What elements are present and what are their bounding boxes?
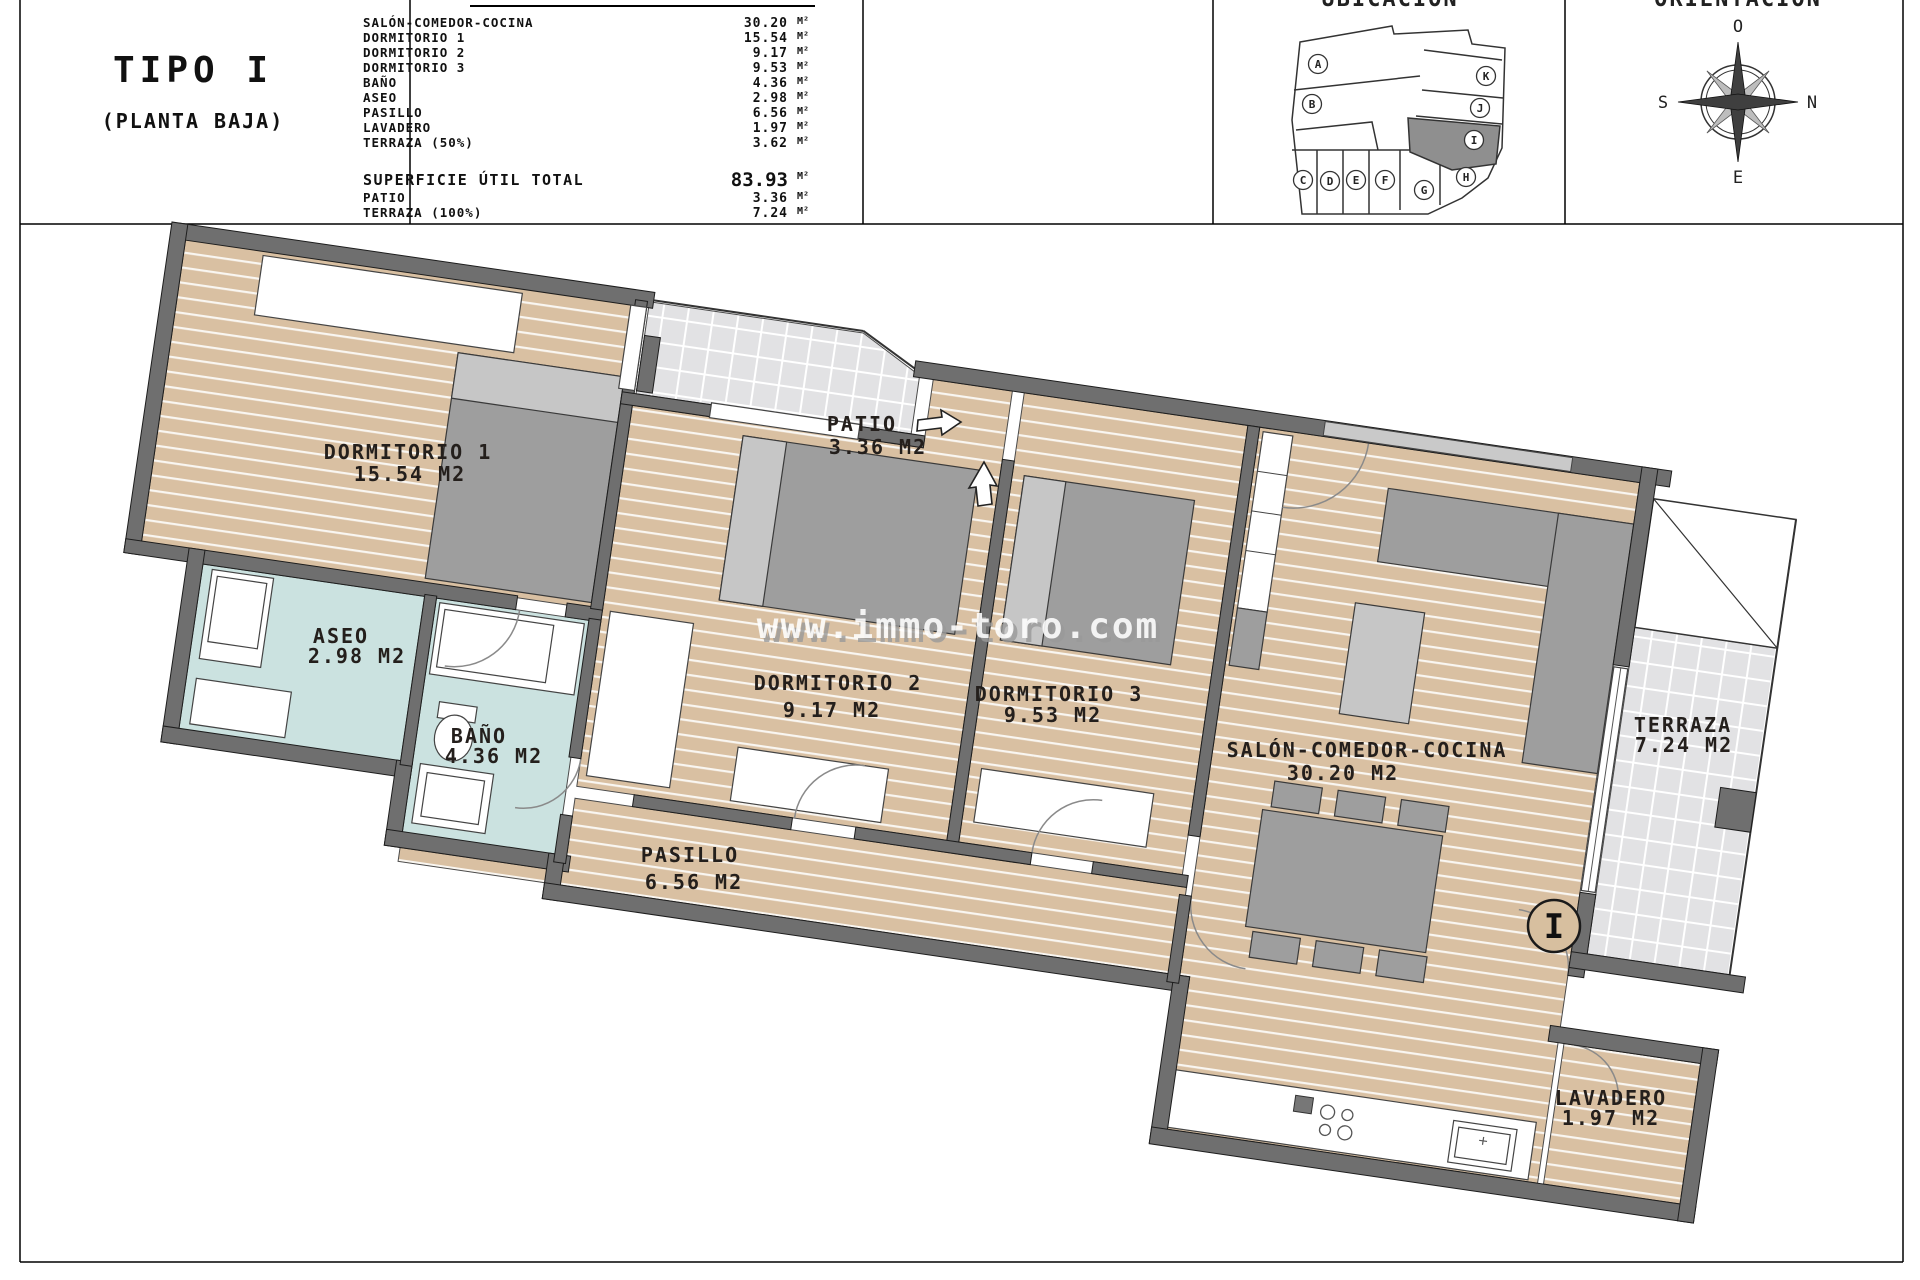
table-row-unit: M² <box>797 136 809 147</box>
table-row-label: TERRAZA (50%) <box>363 135 474 150</box>
room-area-pasillo: 6.56 M2 <box>645 870 743 894</box>
table-row-unit: M² <box>797 76 809 87</box>
table-row-value: 9.17 <box>753 46 788 61</box>
table-row-unit: M² <box>797 91 809 102</box>
unit-letter: C <box>1300 174 1307 187</box>
table-row-label: SALÓN-COMEDOR-COCINA <box>363 15 534 30</box>
table-row-unit: M² <box>797 206 809 217</box>
compass-label-right: N <box>1807 93 1817 113</box>
room-name-pasillo: PASILLO <box>641 843 739 867</box>
table-row-unit: M² <box>797 61 809 72</box>
table-row-unit: M² <box>797 191 809 202</box>
table-row-unit: M² <box>797 171 809 182</box>
terraza-planter <box>1715 787 1756 832</box>
unit-letter: B <box>1309 98 1316 111</box>
table-row-value: 15.54 <box>744 31 788 46</box>
room-area-salon: 30.20 M2 <box>1287 761 1399 785</box>
table-row-label: LAVADERO <box>363 120 431 135</box>
unit-letter: D <box>1327 175 1334 188</box>
compass-label-top: O <box>1733 17 1743 37</box>
compass-label-bottom: E <box>1733 168 1743 188</box>
room-area-dormitorio2: 9.17 M2 <box>783 698 881 722</box>
table-row-unit: M² <box>797 121 809 132</box>
table-row-label: PATIO <box>363 190 406 205</box>
terraza-overhang <box>1635 499 1796 648</box>
table-row-unit: M² <box>797 16 809 27</box>
unit-letter: G <box>1421 184 1428 197</box>
compass-horizontal-point <box>1678 94 1798 110</box>
apartment-structure <box>61 222 1821 1225</box>
unit-letter: A <box>1315 58 1322 71</box>
watermark: www.immo-toro.com www.immo-toro.com <box>757 606 1163 651</box>
floorplan-sheet: TIPO I (PLANTA BAJA) SALÓN-COMEDOR-COCIN… <box>0 0 1920 1280</box>
table-total-label: SUPERFICIE ÚTIL TOTAL <box>363 170 584 189</box>
unit-marker: I <box>1528 900 1580 952</box>
room-name-salon: SALÓN-COMEDOR-COCINA <box>1227 738 1508 762</box>
unit-letter: F <box>1382 174 1389 187</box>
table-row-label: ASEO <box>363 90 397 105</box>
compass-rose: ORIENTACIÓN O N S E <box>1654 0 1822 188</box>
table-row-value: 1.97 <box>753 121 788 136</box>
room-area-terraza: 7.24 M2 <box>1635 733 1733 757</box>
room-area-aseo: 2.98 M2 <box>308 644 406 668</box>
unit-letter-highlighted: I <box>1471 134 1478 147</box>
unit-letter: J <box>1477 102 1484 115</box>
table-row-value: 4.36 <box>753 76 788 91</box>
location-map: UBICACIÓN A B C D E F G <box>1292 0 1505 214</box>
compass-title: ORIENTACIÓN <box>1654 0 1822 12</box>
room-area-patio: 3.36 M2 <box>829 435 927 459</box>
table-row-label: DORMITORIO 3 <box>363 60 465 75</box>
table-row-label: DORMITORIO 1 <box>363 30 465 45</box>
table-row-value: 7.24 <box>753 206 788 221</box>
table-row-label: DORMITORIO 2 <box>363 45 465 60</box>
room-area-bano: 4.36 M2 <box>445 744 543 768</box>
highlighted-unit-shape <box>1408 118 1500 170</box>
table-row-unit: M² <box>797 106 809 117</box>
table-row-label: PASILLO <box>363 105 423 120</box>
area-table: SALÓN-COMEDOR-COCINA 30.20 M² DORMITORIO… <box>363 15 809 221</box>
table-total-value: 83.93 <box>731 169 788 191</box>
stove-pan <box>1293 1095 1313 1113</box>
table-row-value: 6.56 <box>753 106 788 121</box>
compass-label-left: S <box>1658 93 1668 113</box>
table-row-value: 3.36 <box>753 191 788 206</box>
table-row-unit: M² <box>797 31 809 42</box>
location-title: UBICACIÓN <box>1321 0 1458 12</box>
watermark-text: www.immo-toro.com <box>757 606 1159 647</box>
plan-type-title: TIPO I <box>113 50 273 91</box>
room-name-patio: PATIO <box>827 412 897 436</box>
table-row-value: 2.98 <box>753 91 788 106</box>
room-name-dormitorio1: DORMITORIO 1 <box>324 440 493 464</box>
room-area-dormitorio3: 9.53 M2 <box>1004 703 1102 727</box>
table-row-label: BAÑO <box>363 75 397 90</box>
unit-letter: H <box>1463 171 1470 184</box>
unit-letter: E <box>1353 174 1360 187</box>
plan-floor-subtitle: (PLANTA BAJA) <box>102 109 285 133</box>
dining-table <box>1246 810 1443 953</box>
room-area-dormitorio1: 15.54 M2 <box>354 462 466 486</box>
table-row-value: 3.62 <box>753 136 788 151</box>
table-row-value: 9.53 <box>753 61 788 76</box>
unit-letter: K <box>1483 70 1490 83</box>
table-row-label: TERRAZA (100%) <box>363 205 482 220</box>
unit-marker-letter: I <box>1544 907 1564 947</box>
table-row-value: 30.20 <box>744 16 788 31</box>
room-area-lavadero: 1.97 M2 <box>1562 1106 1660 1130</box>
room-name-dormitorio2: DORMITORIO 2 <box>754 671 923 695</box>
title-block: TIPO I (PLANTA BAJA) <box>102 50 285 133</box>
table-row-unit: M² <box>797 46 809 57</box>
